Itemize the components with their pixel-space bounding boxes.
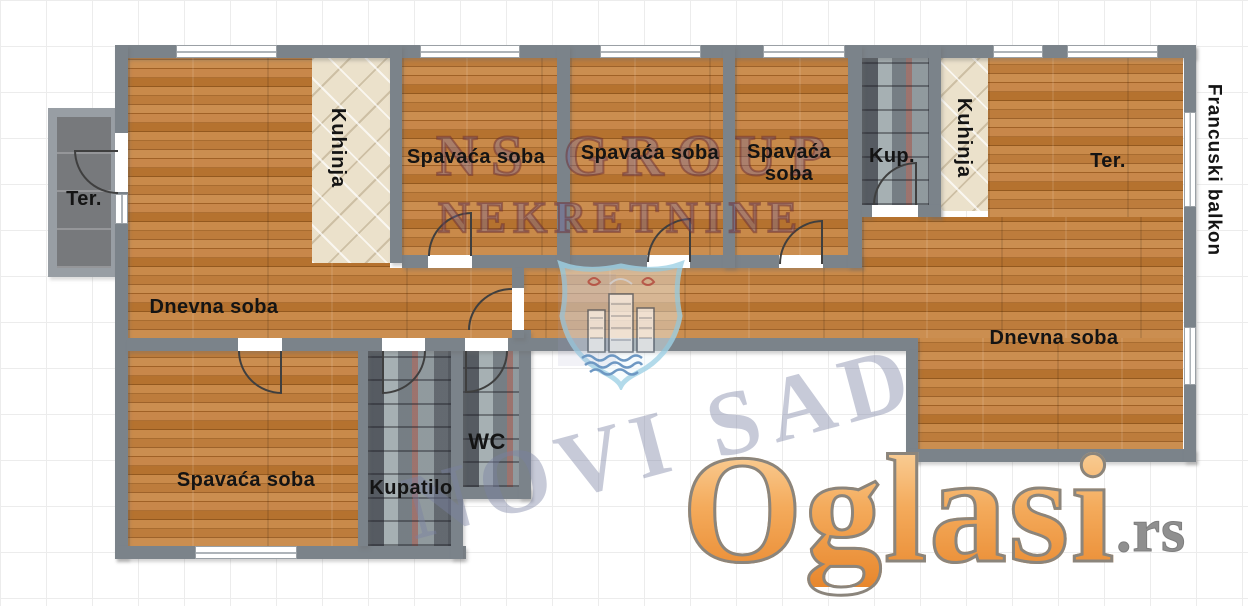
window-french-balcony [1184,112,1196,207]
wall [115,45,128,559]
room-label-french-balcony: Francuski balkon [1203,84,1224,256]
door-opening [382,338,425,351]
wall [918,205,941,217]
watermark-portal-logo: Oglasi.rs [682,432,1186,587]
room-label-kitchen-right: Kuhinja [953,98,975,178]
room-label-bedroom-1: Spavaća soba [407,146,545,168]
room-label-kitchen-left: Kuhinja [327,108,349,188]
wall [848,45,862,268]
room-label-bathroom-small: Kup. [869,145,915,167]
room-label-bedroom-2: Spavaća soba [581,142,719,164]
window [420,45,520,58]
door-opening [512,288,524,330]
room-label-bathroom: Kupatilo [369,477,452,499]
window [600,45,701,58]
wall [862,205,872,217]
wall [358,351,368,546]
room-label-bedroom-3: Spavaća soba [737,141,841,185]
novi-sad-shield-logo [552,258,690,390]
room-label-living-left: Dnevna soba [150,296,279,318]
room-label-terrace-right: Ter. [1090,150,1126,172]
portal-tld: .rs [1116,497,1186,565]
door-opening [465,338,508,351]
terrace-right-floor [988,58,1183,217]
door-opening [872,205,918,217]
portal-name: Oglasi [682,423,1116,595]
room-label-bedroom-4: Spavaća soba [177,469,315,491]
door-opening [428,255,472,268]
window [176,45,277,58]
wall [512,268,524,288]
window [763,45,845,58]
window [1067,45,1158,58]
window [1184,327,1196,385]
watermark-agency-line2: NEKRETNINE [438,192,804,243]
window [115,194,128,224]
wall [512,330,524,338]
wall [1184,45,1196,462]
room-label-living-right: Dnevna soba [990,327,1119,349]
room-label-terrace-left: Ter. [66,188,102,210]
window [993,45,1043,58]
room-label-wc: WC [468,430,505,454]
wall [929,45,941,217]
door-opening [238,338,282,351]
floor-plan-canvas: NS GROUP NEKRETNINE NOVI SAD Oglasi.rs [0,0,1248,606]
kitchen-left-floor [312,58,390,263]
corridor-right-floor [862,217,1183,338]
wall [390,45,402,263]
window [195,546,297,559]
bedroom-4-floor [128,351,358,546]
